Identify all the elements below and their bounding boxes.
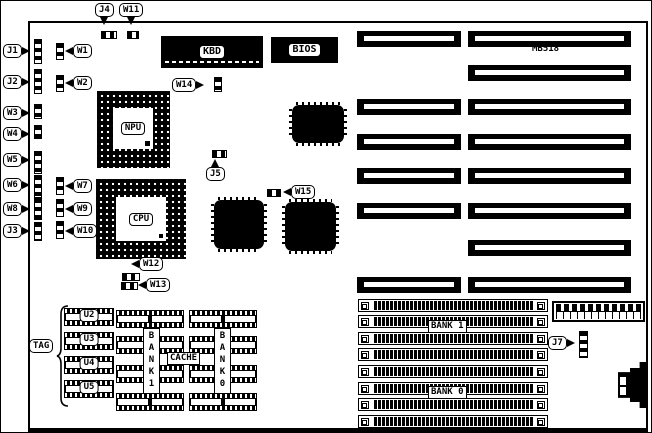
jumper-w10	[56, 221, 64, 239]
arrow-up-icon	[211, 159, 219, 167]
callout-w12: W12	[131, 257, 163, 271]
callout-w13: W13	[138, 278, 170, 292]
label-w3: W3	[3, 106, 22, 120]
callout-w4: W4	[3, 127, 30, 141]
arrow-right-icon	[22, 47, 30, 55]
label-cpu: CPU	[129, 213, 153, 226]
label-w13: W13	[146, 278, 170, 292]
isa-slot-ext	[357, 277, 461, 293]
jumper-w2	[56, 75, 64, 92]
label-w4: W4	[3, 127, 22, 141]
callout-j1: J1	[3, 44, 30, 58]
cpu-socket-center: CPU	[116, 197, 166, 241]
arrow-right-icon	[22, 130, 30, 138]
callout-w15: W15	[283, 185, 315, 199]
npu-socket: NPU	[97, 91, 170, 168]
arrow-down-icon	[100, 17, 108, 25]
label-u5: U5	[80, 381, 99, 394]
label-bank0: BANK 0	[428, 386, 467, 399]
callout-j2: J2	[3, 75, 30, 89]
arrow-right-icon	[22, 205, 30, 213]
npu-socket-center: NPU	[113, 108, 153, 149]
cache-ram-chip	[116, 310, 184, 328]
arrow-right-icon	[567, 339, 575, 347]
power-connector	[552, 301, 645, 322]
jumper-w5	[34, 151, 42, 174]
arrow-left-icon	[65, 79, 73, 87]
pin1-marker	[145, 141, 150, 146]
cache-ram-chip	[189, 310, 257, 328]
isa-slot	[468, 203, 631, 219]
label-w10: W10	[73, 224, 97, 238]
chipset-qfp-right	[285, 202, 336, 251]
isa-slot	[468, 99, 631, 115]
chipset-qfp-top	[292, 105, 344, 143]
arrow-left-icon	[65, 47, 73, 55]
label-j5: J5	[206, 167, 225, 181]
jumper-j1	[34, 39, 42, 64]
jumper-j5	[212, 150, 227, 158]
chipset-qfp-left	[214, 200, 264, 249]
isa-slot	[468, 65, 631, 81]
label-w15: W15	[291, 185, 315, 199]
cpu-socket: CPU	[96, 179, 186, 259]
label-j1: J1	[3, 44, 22, 58]
isa-slot-ext	[357, 134, 461, 150]
label-w7: W7	[73, 179, 92, 193]
label-w9: W9	[73, 202, 92, 216]
jumper-w3	[34, 104, 42, 119]
label-w2: W2	[73, 76, 92, 90]
isa-slot	[468, 240, 631, 256]
tag-ram-u5: U5	[64, 380, 114, 398]
callout-w2: W2	[65, 76, 92, 90]
keyboard-controller-chip: KBD	[161, 36, 263, 68]
arrow-left-icon	[65, 182, 73, 190]
label-kbd: KBD	[199, 45, 225, 59]
arrow-left-icon	[65, 227, 73, 235]
callout-w10: W10	[65, 224, 97, 238]
jumper-j7	[579, 331, 588, 358]
jumper-w1	[56, 43, 64, 60]
isa-slot-ext	[357, 31, 461, 47]
jumper-w6	[34, 175, 42, 198]
tag-ram-u2: U2	[64, 308, 114, 326]
pin1-marker	[159, 234, 163, 238]
tag-ram-u4: U4	[64, 356, 114, 374]
label-npu: NPU	[121, 122, 145, 135]
arrow-right-icon	[22, 227, 30, 235]
simm-socket	[358, 398, 548, 411]
simm-socket	[358, 299, 548, 312]
isa-slot	[468, 31, 631, 47]
label-j3: J3	[3, 224, 22, 238]
label-w8: W8	[3, 202, 22, 216]
bios-chip: BIOS	[271, 37, 338, 63]
label-tag: TAG	[29, 339, 53, 353]
jumper-w11	[127, 31, 139, 39]
isa-slot	[468, 134, 631, 150]
label-j7: J7	[548, 336, 567, 350]
label-j4: J4	[95, 3, 114, 17]
simm-socket	[358, 415, 548, 428]
simm-socket	[358, 365, 548, 378]
jumper-j4	[101, 31, 117, 39]
cache-ram-chip	[116, 393, 184, 411]
simm-socket	[358, 332, 548, 345]
motherboard-diagram: J4 W11 J1 J2 W3 W4 W5 W6 W8 J3 W	[0, 0, 652, 433]
callout-w3: W3	[3, 106, 30, 120]
arrow-right-icon	[196, 81, 204, 89]
label-cache: CACHE	[167, 352, 200, 365]
isa-slot-ext	[357, 99, 461, 115]
label-w12: W12	[139, 257, 163, 271]
callout-j7: J7	[548, 336, 575, 350]
isa-slot	[468, 168, 631, 184]
jumper-j3	[34, 222, 42, 241]
callout-tag: TAG	[29, 339, 53, 353]
label-cache-bank1: BANK1	[143, 328, 160, 394]
isa-slot-ext	[357, 168, 461, 184]
label-w11: W11	[119, 3, 143, 17]
arrow-right-icon	[22, 156, 30, 164]
arrow-left-icon	[131, 260, 139, 268]
cache-ram-chip	[189, 393, 257, 411]
callout-w9: W9	[65, 202, 92, 216]
callout-w1: W1	[65, 44, 92, 58]
label-bank1: BANK 1	[428, 320, 467, 333]
callout-w7: W7	[65, 179, 92, 193]
arrow-left-icon	[65, 205, 73, 213]
isa-slot	[468, 277, 631, 293]
callout-w6: W6	[3, 178, 30, 192]
arrow-left-icon	[138, 281, 146, 289]
jumper-w7	[56, 177, 64, 195]
label-w6: W6	[3, 178, 22, 192]
arrow-right-icon	[22, 78, 30, 86]
label-j2: J2	[3, 75, 22, 89]
isa-slot-ext	[357, 203, 461, 219]
label-cache-bank0: BANK0	[214, 328, 231, 394]
arrow-down-icon	[127, 17, 135, 25]
label-u2: U2	[80, 309, 99, 322]
callout-w8: W8	[3, 202, 30, 216]
jumper-w13	[121, 282, 138, 290]
label-w1: W1	[73, 44, 92, 58]
jumper-w8	[34, 198, 42, 220]
jumper-j2	[34, 69, 42, 94]
tag-ram-u3: U3	[64, 332, 114, 350]
simm-socket	[358, 348, 548, 361]
jumper-w4	[34, 125, 42, 139]
callout-w14: W14	[172, 78, 204, 92]
label-w5: W5	[3, 153, 22, 167]
callout-w5: W5	[3, 153, 30, 167]
label-u3: U3	[80, 333, 99, 346]
jumper-w15	[267, 189, 281, 197]
callout-j4: J4	[95, 3, 114, 25]
callout-w11: W11	[119, 3, 143, 25]
jumper-w14	[214, 77, 222, 92]
arrow-right-icon	[22, 181, 30, 189]
label-u4: U4	[80, 357, 99, 370]
label-w14: W14	[172, 78, 196, 92]
arrow-right-icon	[22, 109, 30, 117]
arrow-left-icon	[283, 188, 291, 196]
callout-j3: J3	[3, 224, 30, 238]
jumper-w9	[56, 199, 64, 217]
label-bios: BIOS	[288, 43, 320, 57]
callout-j5: J5	[206, 159, 225, 181]
